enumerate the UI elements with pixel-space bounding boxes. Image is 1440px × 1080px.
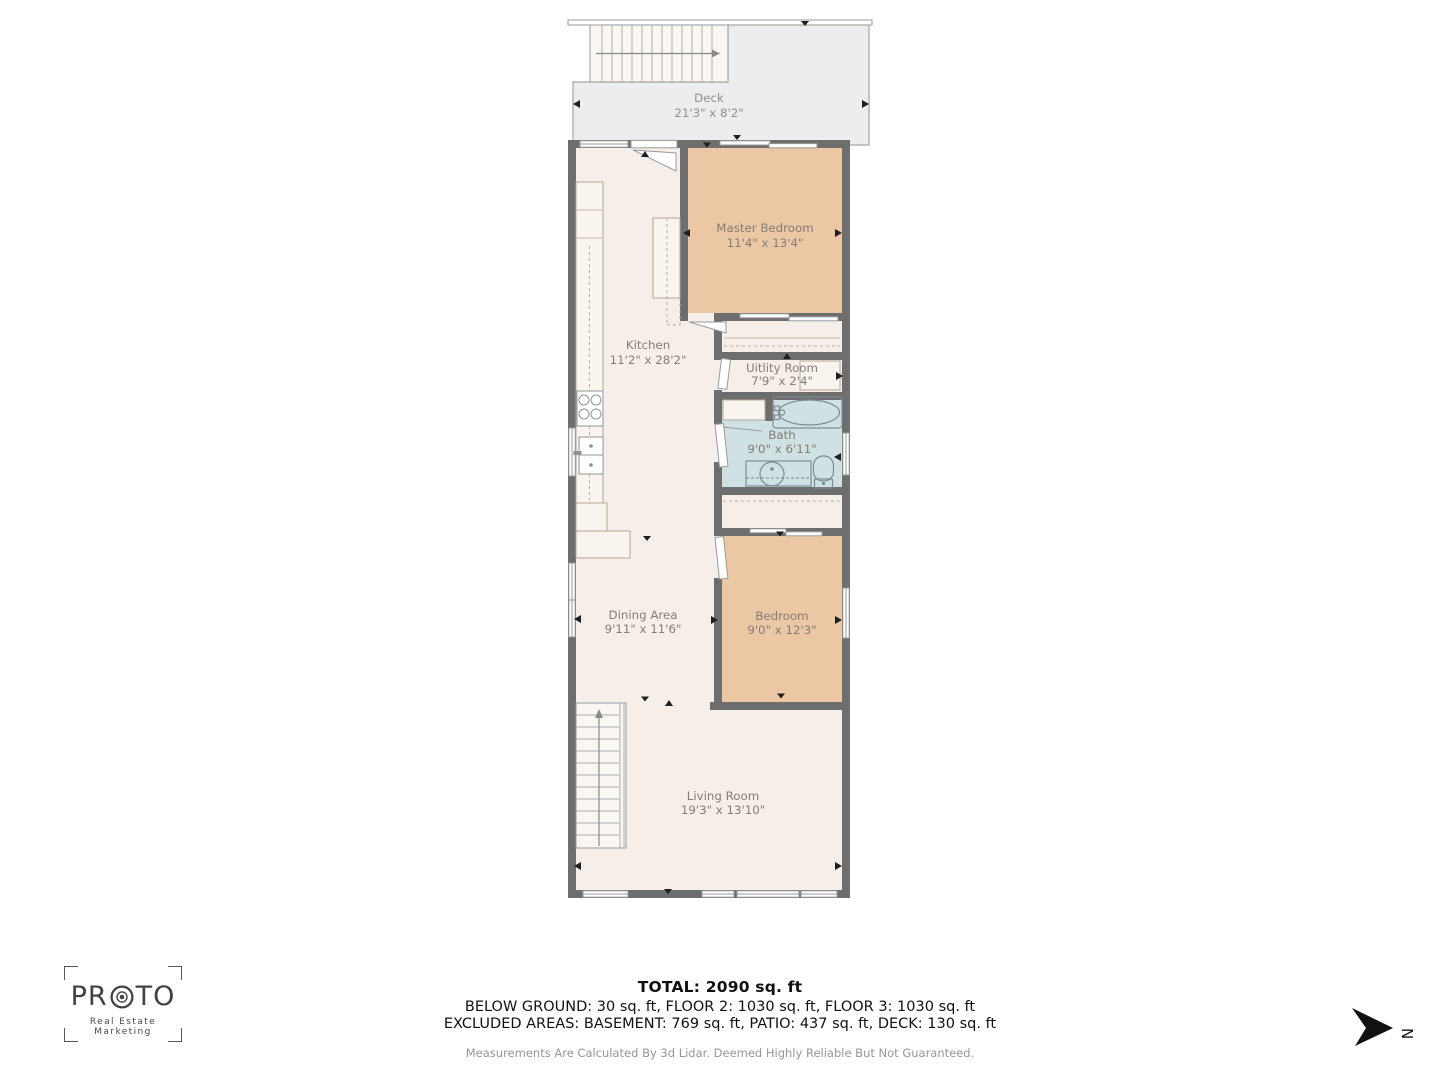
- compass: N: [1336, 996, 1440, 1064]
- wall: [680, 140, 688, 321]
- bedroom-right-window: [843, 588, 849, 638]
- floors-area-text: BELOW GROUND: 30 sq. ft, FLOOR 2: 1030 s…: [0, 999, 1440, 1016]
- living-staircase: [576, 703, 626, 848]
- living-bottom-windows: [583, 891, 837, 897]
- utility-room-dims: 7'9" x 2'4": [751, 374, 813, 388]
- wall: [714, 392, 842, 400]
- wall: [714, 352, 842, 360]
- living-room-dims: 19'3" x 13'10": [681, 803, 765, 817]
- wall: [714, 462, 722, 536]
- master-bedroom-label: Master Bedroom: [716, 221, 813, 235]
- floorplan-drawing: Deck 21'3" x 8'2" Master Bedroom 11'4" x…: [0, 0, 1440, 960]
- total-area-text: TOTAL: 2090 sq. ft: [0, 978, 1440, 996]
- deck-label: Deck: [694, 91, 724, 105]
- area-summary: TOTAL: 2090 sq. ft BELOW GROUND: 30 sq. …: [0, 978, 1440, 1060]
- wall: [568, 140, 576, 898]
- dining-left-window: [569, 563, 575, 637]
- dining-area-label: Dining Area: [609, 608, 678, 622]
- deck-dims: 21'3" x 8'2": [674, 106, 743, 120]
- living-room-label: Living Room: [687, 789, 759, 803]
- bath-label: Bath: [768, 428, 795, 442]
- master-bedroom-dims: 11'4" x 13'4": [727, 236, 804, 250]
- lower-cabinet: [576, 503, 607, 531]
- bath-closet: [723, 400, 765, 420]
- stove-icon: [577, 391, 603, 426]
- deck-top-rail: [568, 20, 872, 25]
- disclaimer-text: Measurements Are Calculated By 3d Lidar.…: [0, 1046, 1440, 1060]
- compass-north-label: N: [1398, 1028, 1416, 1039]
- excluded-area-text: EXCLUDED AREAS: BASEMENT: 769 sq. ft, PA…: [0, 1016, 1440, 1033]
- utility-room-label: Uitlity Room: [746, 361, 818, 375]
- dining-area-dims: 9'11" x 11'6": [605, 622, 682, 636]
- wall: [710, 702, 842, 710]
- kitchen-deck-door-opening: [631, 140, 677, 147]
- north-arrow-icon: [1352, 1008, 1393, 1046]
- kitchen-dims: 11'2" x 28'2": [610, 353, 687, 367]
- wall: [842, 140, 850, 898]
- bath-dims: 9'0" x 6'11": [747, 442, 816, 456]
- bedroom-dims: 9'0" x 12'3": [747, 623, 816, 637]
- bath-right-window: [843, 433, 849, 475]
- wall: [765, 392, 773, 421]
- deck-staircase: [590, 25, 728, 82]
- floorplan-page: Deck 21'3" x 8'2" Master Bedroom 11'4" x…: [0, 0, 1440, 1080]
- kitchen-label: Kitchen: [626, 338, 670, 352]
- deck: [568, 20, 872, 145]
- kitchen-top-window: [580, 141, 628, 147]
- bedroom-label: Bedroom: [755, 609, 808, 623]
- counter-return: [576, 531, 630, 558]
- wall: [714, 578, 722, 710]
- wall: [714, 390, 722, 424]
